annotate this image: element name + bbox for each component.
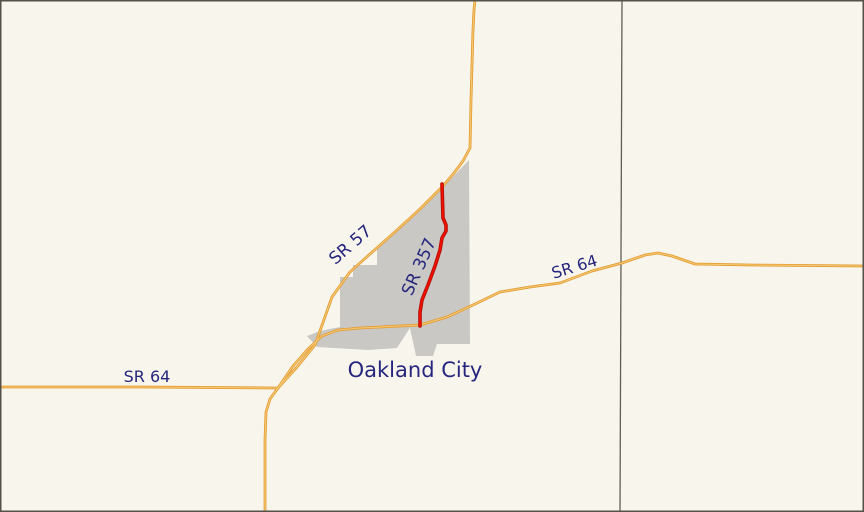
- label-oakland-city: Oakland City: [348, 358, 483, 382]
- map-canvas[interactable]: SR 57 SR 357 SR 64 SR 64 Oakland City: [0, 0, 864, 512]
- map-frame: SR 57 SR 357 SR 64 SR 64 Oakland City: [0, 0, 864, 512]
- label-sr64-west: SR 64: [124, 367, 171, 386]
